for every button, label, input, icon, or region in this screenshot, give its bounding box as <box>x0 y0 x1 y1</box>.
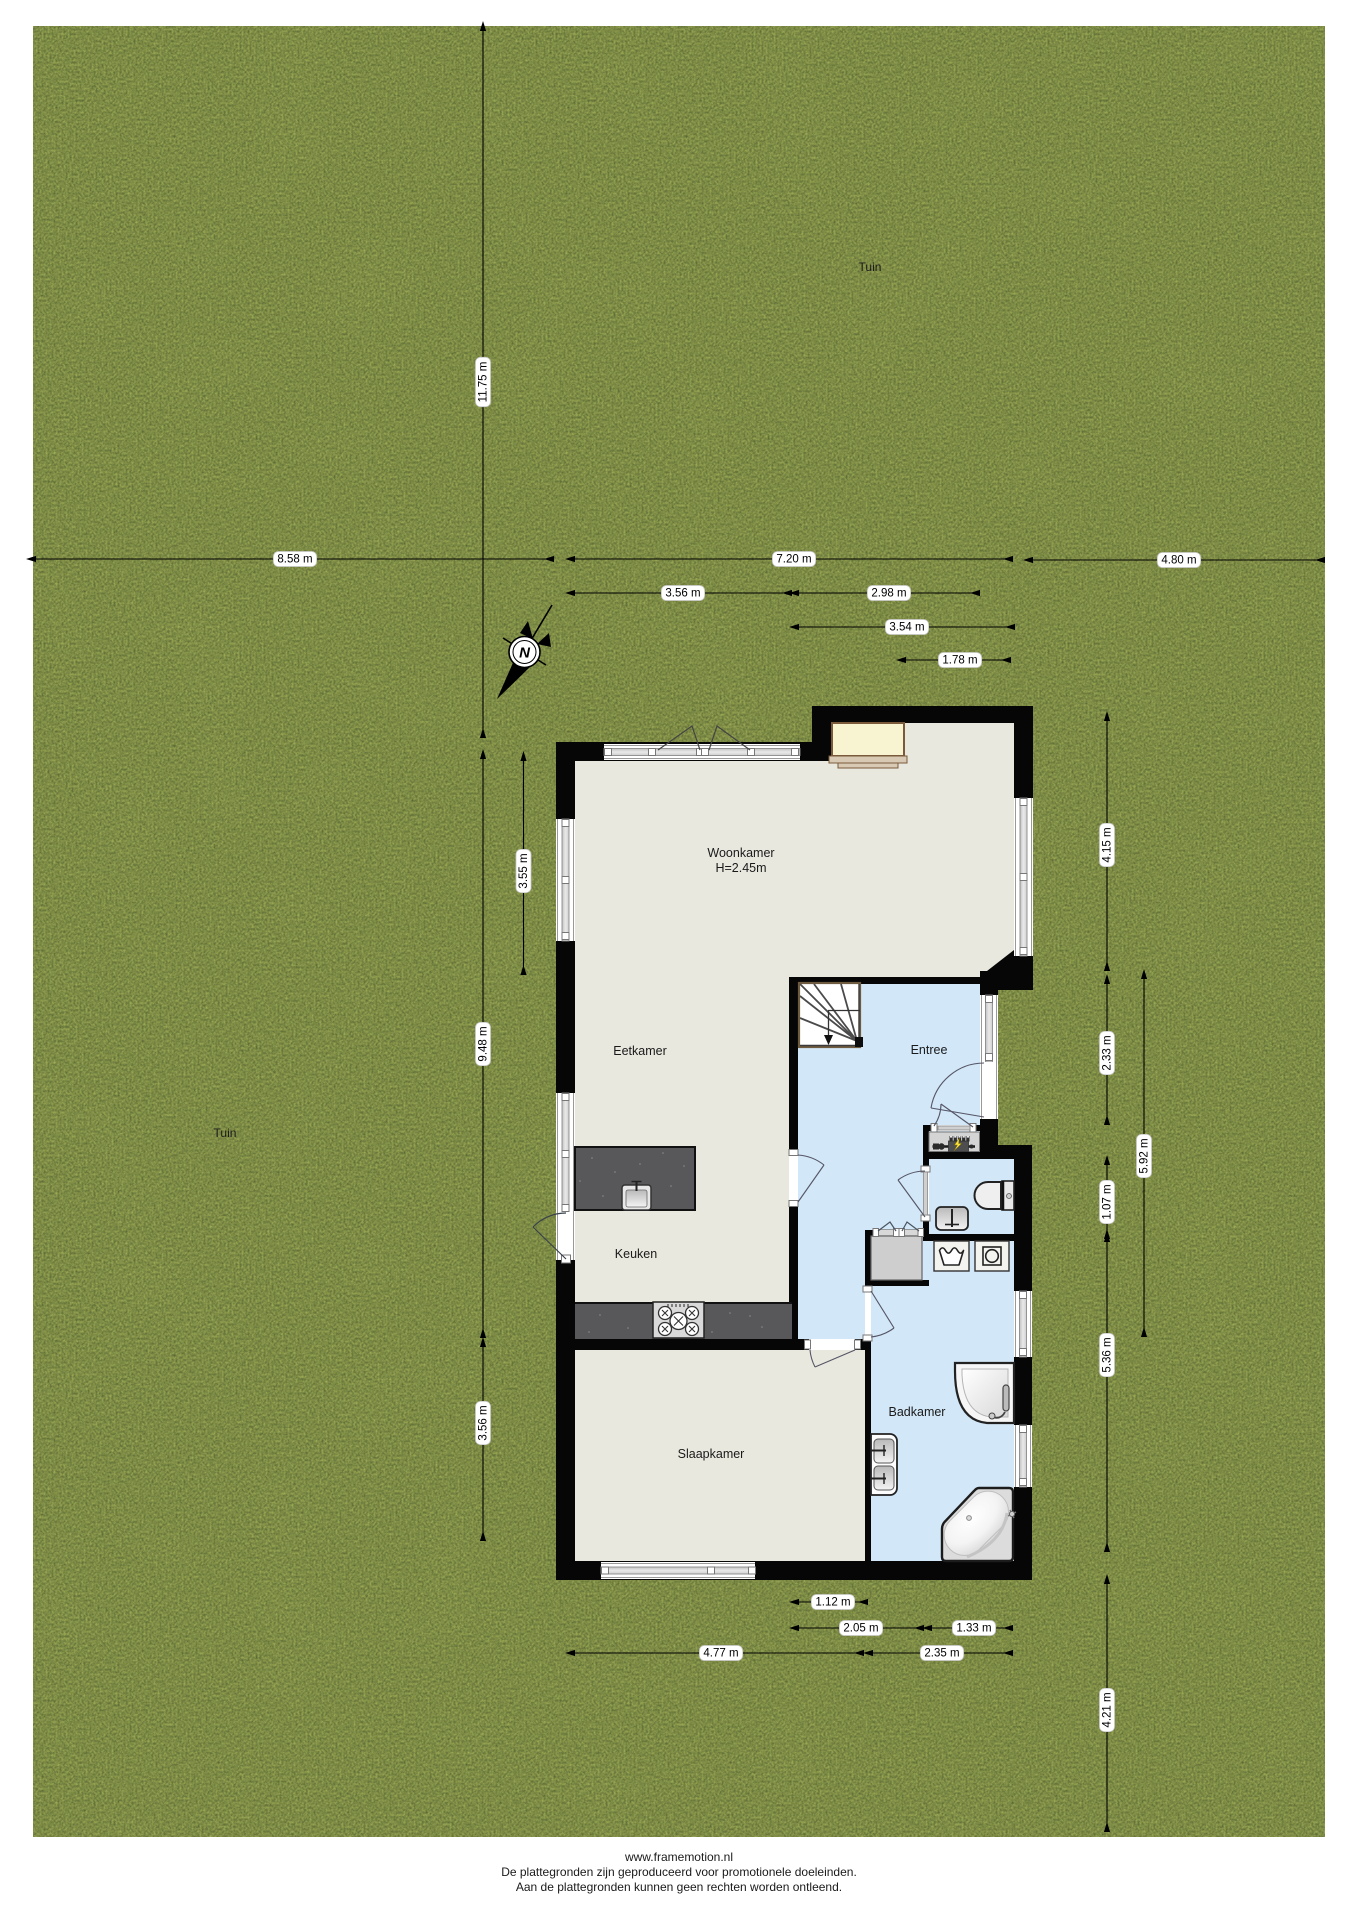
svg-text:1.78 m: 1.78 m <box>942 655 977 667</box>
svg-text:2.98 m: 2.98 m <box>871 588 906 600</box>
svg-text:8.58 m: 8.58 m <box>277 554 312 566</box>
svg-text:3.54 m: 3.54 m <box>889 622 924 634</box>
svg-text:4.80 m: 4.80 m <box>1161 555 1196 567</box>
svg-text:2.33 m: 2.33 m <box>1102 1035 1114 1070</box>
svg-text:Keuken: Keuken <box>615 1247 657 1261</box>
svg-text:4.15 m: 4.15 m <box>1102 827 1114 862</box>
svg-text:Tuin: Tuin <box>214 1126 237 1140</box>
svg-text:Tuin: Tuin <box>859 260 882 274</box>
svg-text:2.05 m: 2.05 m <box>843 1623 878 1635</box>
svg-text:3.56 m: 3.56 m <box>665 588 700 600</box>
svg-text:N: N <box>519 645 531 662</box>
svg-text:9.48 m: 9.48 m <box>478 1026 490 1061</box>
svg-text:7.20 m: 7.20 m <box>776 554 811 566</box>
svg-text:Slaapkamer: Slaapkamer <box>678 1447 745 1461</box>
svg-text:De plattegronden zijn geproduc: De plattegronden zijn geproduceerd voor … <box>501 1865 857 1879</box>
svg-text:Badkamer: Badkamer <box>889 1405 946 1419</box>
svg-text:4.21 m: 4.21 m <box>1102 1692 1114 1727</box>
svg-text:11.75 m: 11.75 m <box>478 362 490 403</box>
svg-text:1.33 m: 1.33 m <box>956 1623 991 1635</box>
svg-text:www.framemotion.nl: www.framemotion.nl <box>624 1850 733 1864</box>
svg-text:H=2.45m: H=2.45m <box>715 861 766 875</box>
svg-text:3.55 m: 3.55 m <box>518 853 530 888</box>
svg-text:3.56 m: 3.56 m <box>478 1405 490 1440</box>
svg-text:4.77 m: 4.77 m <box>703 1648 738 1660</box>
svg-text:Eetkamer: Eetkamer <box>613 1044 667 1058</box>
svg-text:5.36 m: 5.36 m <box>1102 1337 1114 1372</box>
svg-text:Entree: Entree <box>911 1043 948 1057</box>
svg-text:2.35 m: 2.35 m <box>924 1648 959 1660</box>
svg-text:1.12 m: 1.12 m <box>815 1597 850 1609</box>
svg-text:5.92 m: 5.92 m <box>1139 1138 1151 1173</box>
svg-text:1.07 m: 1.07 m <box>1102 1184 1114 1219</box>
svg-text:Aan de plattegronden kunnen ge: Aan de plattegronden kunnen geen rechten… <box>516 1880 842 1894</box>
svg-text:Woonkamer: Woonkamer <box>707 846 774 860</box>
